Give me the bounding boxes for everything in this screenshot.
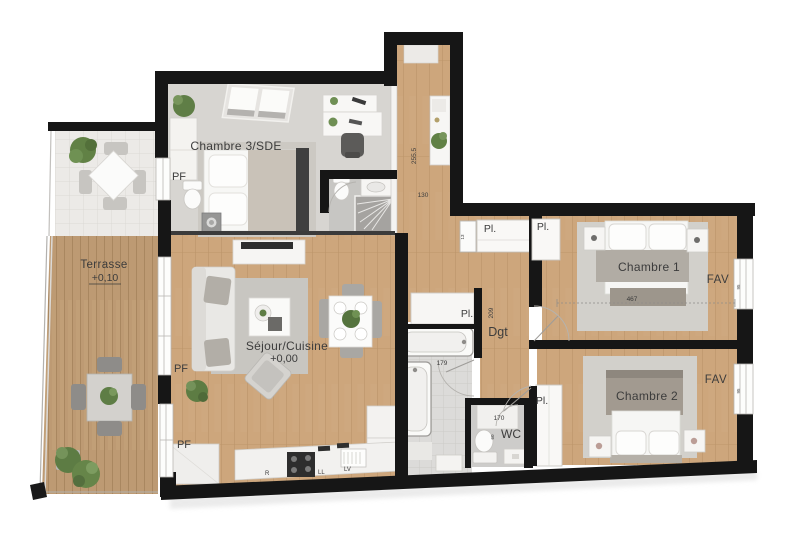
svg-text:Pl.: Pl. [484,223,496,235]
svg-text:+0,00: +0,00 [270,353,298,365]
svg-text:255.5: 255.5 [411,147,418,164]
svg-text:LL: LL [318,470,325,476]
svg-text:PF: PF [172,171,186,183]
svg-text:Dgt: Dgt [488,325,508,339]
svg-text:PF: PF [177,439,191,451]
svg-text:Chambre 2: Chambre 2 [616,389,678,403]
svg-text:Séjour/Cuisine: Séjour/Cuisine [246,339,328,353]
svg-text:Pl.: Pl. [461,308,473,320]
svg-text:95: 95 [736,284,741,290]
svg-text:95: 95 [736,388,741,394]
svg-text:PF: PF [174,363,188,375]
svg-text:13: 13 [460,234,465,240]
svg-text:WC: WC [501,427,521,441]
svg-text:LV: LV [344,467,351,473]
svg-text:170: 170 [494,415,505,422]
svg-text:Chambre 3/SDE: Chambre 3/SDE [190,139,281,153]
svg-text:Pl.: Pl. [537,221,549,233]
svg-text:FAV: FAV [705,374,727,386]
svg-text:130: 130 [418,192,429,199]
svg-text:179: 179 [437,360,448,367]
svg-text:Terrasse: Terrasse [80,259,127,271]
svg-text:FAV: FAV [707,274,729,286]
svg-text:467: 467 [627,296,638,303]
svg-text:209: 209 [488,307,495,318]
svg-text:Chambre 1: Chambre 1 [618,260,680,274]
svg-text:+0,10: +0,10 [92,272,119,284]
svg-text:Pl.: Pl. [536,395,548,407]
svg-text:60: 60 [490,434,495,440]
svg-text:R: R [265,471,270,477]
